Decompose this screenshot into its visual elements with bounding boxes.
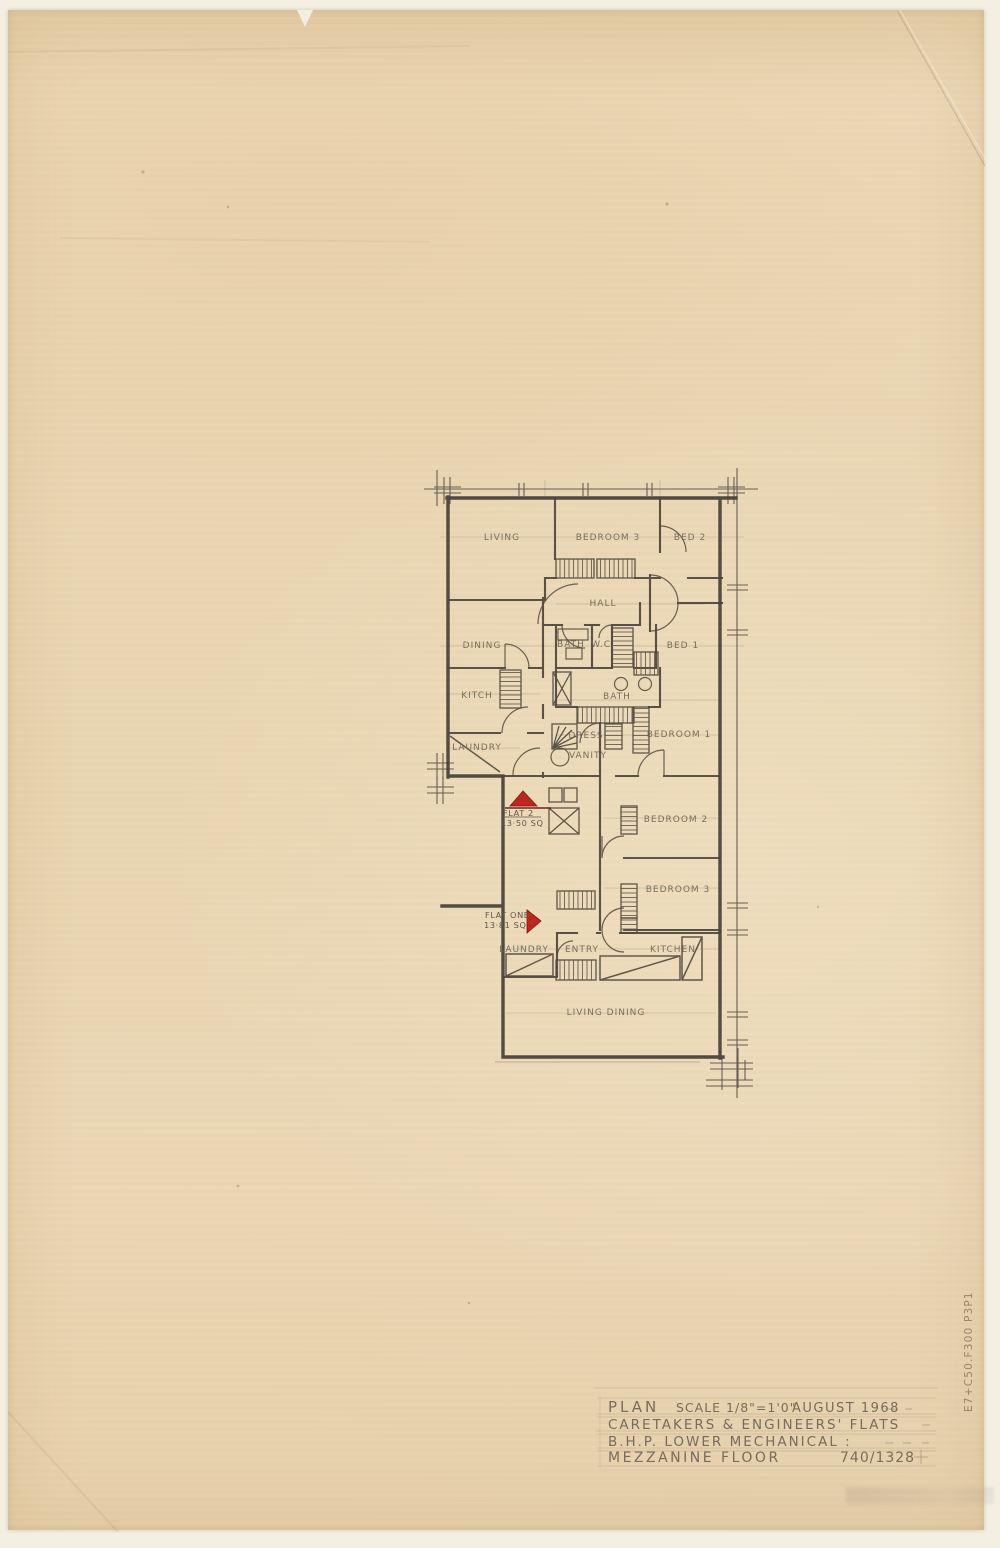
room-label-bedroom2: BEDROOM 2 (644, 815, 709, 825)
room-label-kitchen: KITCHEN (650, 945, 696, 955)
faint-stamp (846, 1487, 994, 1504)
flat-annotations: FLAT 2 13·50 SQ FLAT ONE 13·81 SQ (484, 808, 543, 930)
scanned-drawing-page: { "title_block": { "plan_word": "PLAN", … (0, 0, 1000, 1548)
room-label-dress: DRESS (568, 731, 603, 741)
title-plan-word: PLAN (608, 1398, 659, 1416)
title-line4: MEZZANINE FLOOR (608, 1450, 781, 1466)
title-scale: SCALE 1/8"=1'0" (676, 1400, 796, 1415)
room-label-dining: DINING (463, 641, 502, 651)
room-label-bedroom1: BEDROOM 1 (647, 730, 712, 740)
room-label-bath-lower: BATH (603, 692, 631, 702)
room-label-bath-upper: BATH (557, 640, 585, 650)
drawing-sheet: LIVING BEDROOM 3 BED 2 HALL DINING BATH … (8, 10, 984, 1530)
room-label-vanity: VANITY (569, 751, 607, 761)
flat1-area: 13·81 SQ (484, 920, 526, 930)
title-line2: CARETAKERS & ENGINEERS' FLATS (608, 1417, 900, 1433)
room-label-laundry-upper: LAUNDRY (452, 743, 502, 753)
room-label-laundry-lower: LAUNDRY (499, 945, 549, 955)
room-label-living: LIVING (484, 533, 520, 543)
floor-plan-drawing: LIVING BEDROOM 3 BED 2 HALL DINING BATH … (0, 0, 1000, 1548)
flat1-label: FLAT ONE (485, 910, 530, 920)
title-date: AUGUST 1968 (792, 1401, 900, 1416)
room-label-hall: HALL (590, 599, 617, 609)
room-label-kitch: KITCH (461, 691, 493, 701)
room-label-bed1: BED 1 (667, 641, 699, 651)
room-label-bedroom3-lower: BEDROOM 3 (646, 885, 711, 895)
flat2-label: FLAT 2 (503, 808, 534, 818)
room-label-entry: ENTRY (565, 945, 599, 955)
room-label-wc: W.C. (591, 640, 615, 650)
title-drawing-number: 740/1328 (840, 1450, 915, 1466)
room-label-bedroom3-upper: BEDROOM 3 (576, 533, 641, 543)
paper-creases (8, 10, 986, 1532)
room-label-living-dining: LIVING DINING (567, 1008, 646, 1018)
room-label-bed2: BED 2 (674, 533, 706, 543)
archive-side-number: E7+C50.F300 P3P1 (963, 1291, 975, 1412)
flat2-area: 13·50 SQ (501, 818, 543, 828)
flat2-arrow-icon (510, 791, 537, 806)
title-line3: B.H.P. LOWER MECHANICAL : (608, 1434, 852, 1450)
title-block: PLAN SCALE 1/8"=1'0" AUGUST 1968 CARETAK… (595, 1388, 938, 1468)
